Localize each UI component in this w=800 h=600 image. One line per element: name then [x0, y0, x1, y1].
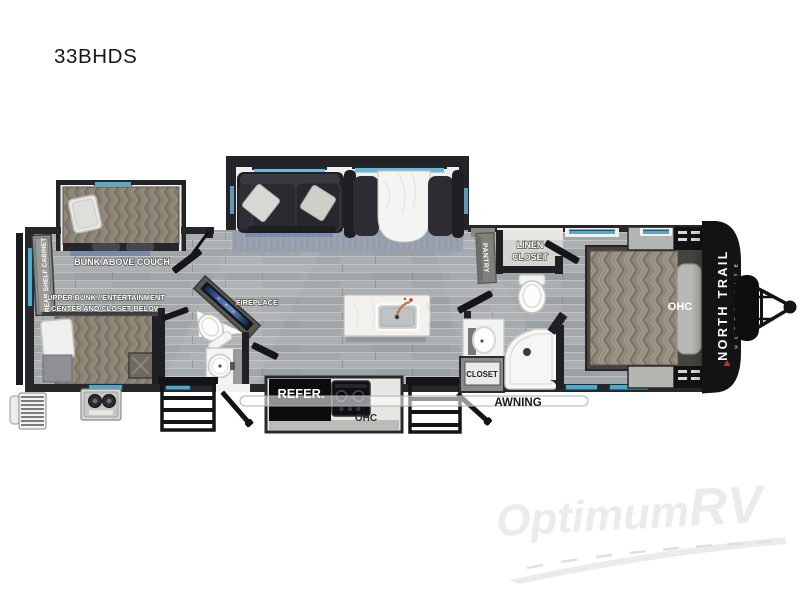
svg-text:33BHDS: 33BHDS [54, 45, 137, 68]
svg-text:UPPER BUNK / ENTERTAINMENT: UPPER BUNK / ENTERTAINMENT [47, 293, 165, 302]
svg-text:REFER.: REFER. [278, 386, 325, 401]
svg-text:CLOSET: CLOSET [512, 252, 548, 262]
svg-text:OHC: OHC [668, 301, 693, 313]
svg-text:AWNING: AWNING [494, 397, 541, 409]
svg-text:OHC: OHC [355, 413, 377, 424]
svg-text:FIREPLACE: FIREPLACE [236, 298, 278, 307]
svg-text:BUNK ABOVE COUCH: BUNK ABOVE COUCH [74, 257, 170, 267]
svg-text:CENTER AND CLOSET BELOW: CENTER AND CLOSET BELOW [51, 304, 161, 313]
svg-text:LINEN: LINEN [517, 240, 543, 250]
svg-text:NORTH TRAIL: NORTH TRAIL [716, 249, 730, 361]
svg-text:CLOSET: CLOSET [466, 370, 498, 379]
